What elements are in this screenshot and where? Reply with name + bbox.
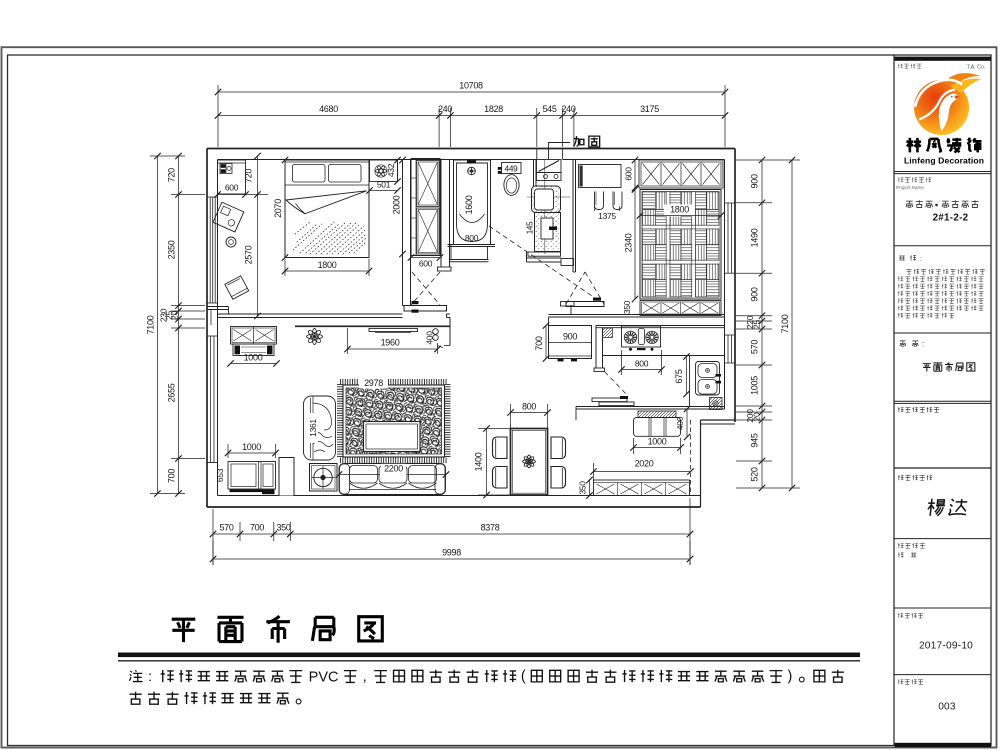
svg-text:1000: 1000 — [242, 442, 261, 452]
svg-text:,: , — [363, 668, 367, 684]
svg-text::: : — [922, 340, 924, 349]
svg-text:PVC: PVC — [309, 669, 339, 685]
svg-text:350: 350 — [578, 481, 588, 495]
svg-text:1960: 1960 — [381, 338, 400, 348]
svg-text:1361: 1361 — [308, 419, 318, 437]
svg-text:501: 501 — [377, 180, 391, 190]
svg-text:675: 675 — [674, 369, 684, 383]
svg-text:2017-09-10: 2017-09-10 — [919, 641, 973, 652]
svg-text:145: 145 — [526, 221, 535, 234]
svg-text:1828: 1828 — [484, 104, 503, 114]
svg-text:600: 600 — [624, 167, 634, 181]
svg-text:2#1-2-2: 2#1-2-2 — [933, 213, 969, 224]
svg-text:700: 700 — [534, 336, 544, 350]
svg-text:1490: 1490 — [750, 228, 760, 247]
svg-text:1400: 1400 — [474, 452, 484, 471]
svg-text:2200: 2200 — [384, 464, 403, 474]
svg-text:240: 240 — [561, 104, 575, 114]
svg-text:4680: 4680 — [319, 104, 338, 114]
svg-text:600: 600 — [225, 183, 239, 193]
svg-text:8378: 8378 — [481, 523, 500, 533]
svg-text:400: 400 — [675, 416, 685, 430]
svg-text:720: 720 — [244, 169, 254, 183]
svg-text:700: 700 — [167, 469, 177, 483]
svg-text:2978: 2978 — [364, 378, 383, 388]
svg-text:1800: 1800 — [318, 260, 337, 270]
svg-text:545: 545 — [542, 104, 556, 114]
svg-text:2655: 2655 — [167, 383, 177, 402]
svg-text:3175: 3175 — [640, 104, 659, 114]
svg-text:T.A. Co.: T.A. Co. — [967, 64, 985, 70]
svg-text:350: 350 — [276, 523, 290, 533]
svg-text:Project Name: Project Name — [896, 185, 924, 190]
svg-text:): ) — [788, 669, 793, 685]
svg-text:1000: 1000 — [244, 353, 263, 363]
svg-text:900: 900 — [563, 332, 577, 342]
svg-text:2020: 2020 — [635, 459, 654, 469]
svg-text:10708: 10708 — [459, 81, 483, 91]
svg-text:700: 700 — [250, 523, 264, 533]
svg-text:720: 720 — [167, 168, 177, 182]
svg-text:945: 945 — [750, 433, 760, 447]
svg-text:900: 900 — [750, 287, 760, 301]
svg-text:2350: 2350 — [167, 240, 177, 259]
svg-text:1600: 1600 — [464, 195, 474, 214]
svg-text:600: 600 — [419, 259, 433, 269]
svg-text:(: ( — [521, 669, 526, 685]
svg-text:2570: 2570 — [244, 245, 254, 264]
svg-text:7100: 7100 — [780, 314, 790, 333]
svg-text:400: 400 — [425, 331, 435, 345]
svg-text:240: 240 — [438, 104, 452, 114]
svg-text:20: 20 — [170, 311, 180, 320]
svg-text:800: 800 — [635, 359, 649, 369]
svg-text:1005: 1005 — [750, 376, 760, 395]
svg-text::: : — [148, 668, 152, 684]
svg-text:25: 25 — [752, 320, 762, 329]
svg-text:1800: 1800 — [670, 205, 689, 215]
svg-text:2340: 2340 — [624, 233, 634, 252]
svg-text:570: 570 — [750, 340, 760, 354]
svg-text:2000: 2000 — [392, 195, 402, 214]
svg-text:520: 520 — [750, 467, 760, 481]
svg-text:350: 350 — [622, 300, 632, 314]
svg-text:449: 449 — [505, 164, 519, 174]
svg-text:900: 900 — [750, 174, 760, 188]
svg-text:9998: 9998 — [442, 548, 461, 558]
svg-text:800: 800 — [465, 233, 479, 243]
svg-text:20: 20 — [752, 412, 762, 421]
svg-text:1375: 1375 — [598, 211, 616, 221]
svg-text:570: 570 — [219, 523, 233, 533]
svg-text:432: 432 — [386, 163, 396, 177]
svg-text:Linfeng Decoration: Linfeng Decoration — [904, 156, 984, 166]
svg-text:003: 003 — [938, 702, 956, 713]
svg-text:800: 800 — [522, 402, 536, 412]
svg-text:2070: 2070 — [273, 199, 283, 218]
svg-text::: : — [920, 256, 922, 263]
svg-text:7100: 7100 — [146, 315, 156, 334]
svg-text:653: 653 — [215, 468, 225, 482]
svg-text:1000: 1000 — [648, 437, 667, 447]
